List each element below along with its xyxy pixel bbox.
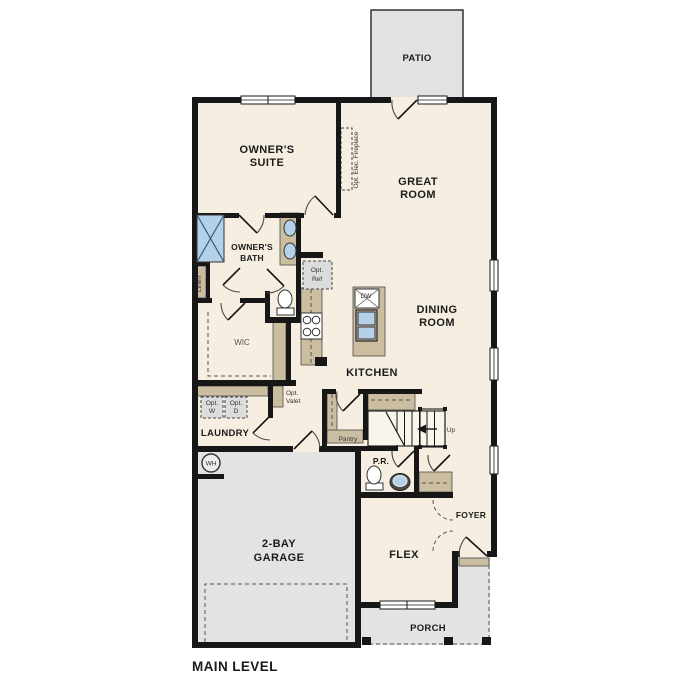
wall-counter-endcap [315,357,327,366]
label-great-room-2: ROOM [400,189,436,201]
label-great-room-1: GREAT [398,176,438,188]
porch-post-2 [444,637,453,645]
wall-pantry-right [363,389,368,440]
label-opt-w-1: Opt. [206,400,218,407]
wic-shelf [273,320,286,382]
label-wic: WIC [234,338,250,347]
wall-exterior-right [491,97,497,557]
foyer-closet-shelf [419,472,452,492]
wall-laundry-top [192,380,296,386]
wall-bath-kitchen [296,252,323,258]
label-kitchen: KITCHEN [346,367,398,379]
label-opt-fireplace: Opt. Elec. Fireplace [353,131,360,188]
wall-pr-top [358,446,398,451]
label-owners-bath-1: OWNER'S [231,242,273,252]
floor-plan-page: PATIO OWNER'S SUITE GREAT ROOM Opt. Elec… [0,0,687,687]
porch-post-1 [362,637,371,645]
label-opt-valet-2: Valet [286,398,301,405]
porch-post-3 [482,637,491,645]
wall-wh-stub [192,474,224,479]
plan-title: MAIN LEVEL [192,659,278,674]
label-porch: PORCH [410,623,446,634]
label-laundry: LAUNDRY [201,428,250,439]
label-dw: DW [361,293,373,300]
label-flex: FLEX [389,549,419,561]
wall-wic-top-right [240,298,267,303]
wall-garage-top [192,446,361,452]
label-dining-2: ROOM [419,317,455,329]
window-suite-top [241,96,295,104]
floor-fills [192,10,497,648]
wall-linen-right [206,262,210,300]
label-opt-ref-1: Opt. [311,267,323,274]
wall-pr-right [414,446,419,497]
wall-flex-top [355,492,453,498]
label-foyer: FOYER [456,510,486,520]
label-wh: WH [206,461,217,468]
opening-bath-door [239,213,265,218]
window-flex-bottom [380,601,435,609]
vanity-sink-1 [284,220,296,236]
wall-bath-right [296,213,301,323]
label-patio: PATIO [402,53,431,64]
window-dining-right-upper [490,260,498,291]
label-up: Up [447,427,456,434]
label-owners-suite-2: SUITE [250,157,284,169]
wall-pantry-left [322,389,327,446]
wall-garage-right [355,446,361,648]
wall-wc-bottom [265,317,301,323]
wall-flex-right [452,551,458,608]
label-garage-1: 2-BAY [262,538,296,550]
laundry-counter [197,386,268,396]
wall-garage-bottom [192,642,361,648]
window-foyer-right [490,446,498,474]
label-opt-valet-1: Opt. [286,390,298,397]
cooktop [301,313,322,339]
label-opt-ref-2: Ref [312,276,322,283]
floor-plan-canvas: PATIO OWNER'S SUITE GREAT ROOM Opt. Elec… [0,0,687,687]
label-opt-d-2: D [234,408,239,415]
label-owners-bath-2: BATH [240,253,264,263]
label-opt-d-1: Opt. [230,400,242,407]
wall-pantry-top-stub [322,389,336,394]
label-pr: P.R. [373,456,389,466]
label-dining-1: DINING [417,304,458,316]
opt-ref-box [303,261,332,289]
label-owners-suite-1: OWNER'S [240,144,295,156]
opening-suite-door [304,213,334,218]
wall-laundry-right [268,380,273,418]
window-dining-right-lower [490,348,498,380]
wall-stair-top [358,389,422,394]
window-greatroom-top [418,96,447,104]
shower [197,215,224,262]
pr-sink [390,474,410,491]
label-linen: Linen [196,276,203,292]
label-pantry: Pantry [339,436,359,443]
wall-exterior-left [192,97,198,648]
wall-exterior-top [192,97,497,103]
label-opt-w-2: W [209,408,216,415]
label-garage-2: GARAGE [254,552,305,564]
wall-wic-right [286,317,291,385]
front-step [459,558,489,566]
vanity-sink-2 [284,243,296,259]
wall-suite-divider [336,100,341,218]
island-sink [356,310,377,341]
stairs [368,407,447,449]
